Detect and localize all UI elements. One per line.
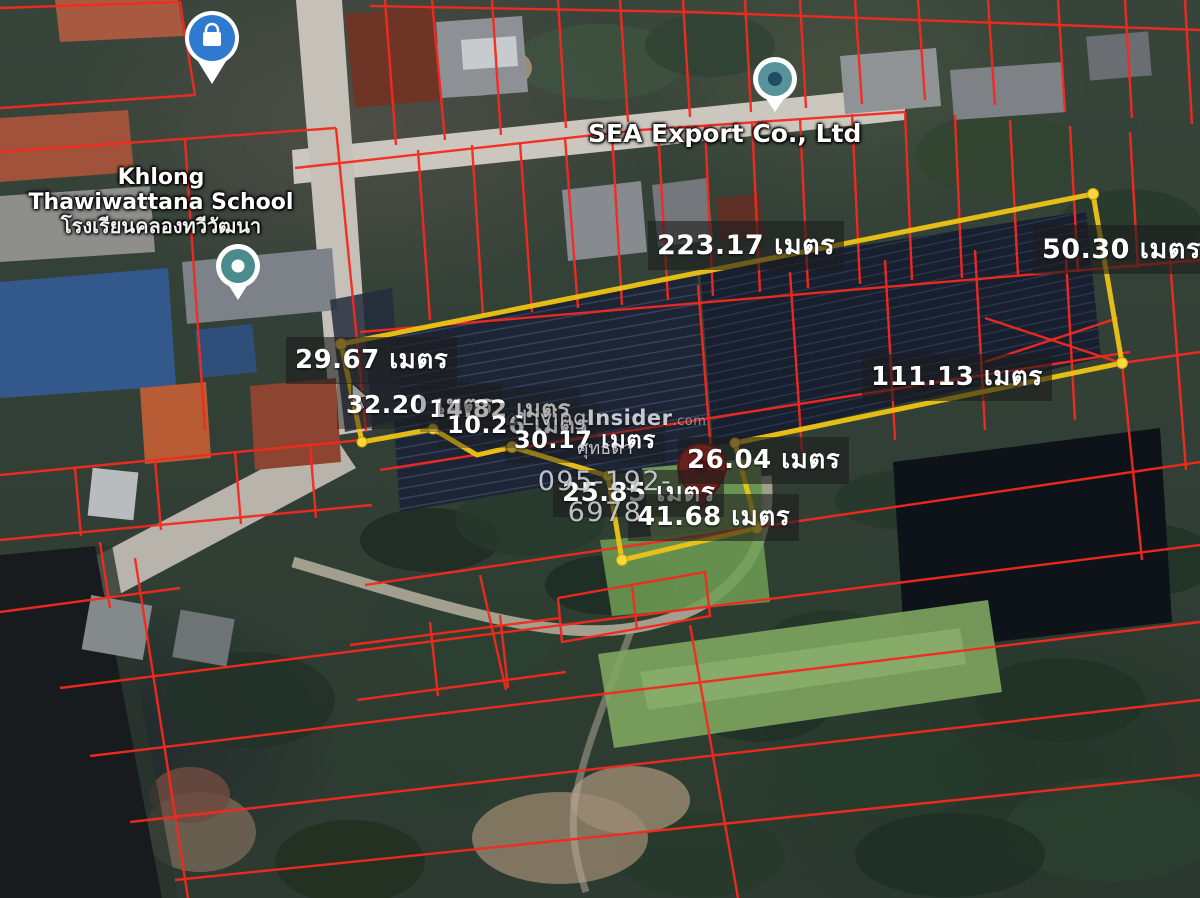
watermark-brand-prefix: Living xyxy=(521,406,586,430)
measurement-frontage: 29.67 เมตร xyxy=(286,337,457,384)
school-label-thai: โรงเรียนคลองทวีวัฒนา xyxy=(22,215,300,237)
measurement-right: 50.30 เมตร xyxy=(1033,225,1200,274)
school-label-line2: Thawiwattana School xyxy=(22,191,300,216)
watermark: ⌂LivingInsider.com ศุทธดา 095-192-6978 xyxy=(505,406,705,528)
measurement-top: 223.17 เมตร xyxy=(648,221,844,270)
house-logo-icon: ⌂ xyxy=(505,406,519,431)
satellite-map[interactable]: Khlong Thawiwattana School โรงเรียนคลองท… xyxy=(0,0,1200,898)
school-label[interactable]: Khlong Thawiwattana School โรงเรียนคลองท… xyxy=(22,166,300,238)
watermark-phone: 095-192-6978 xyxy=(505,466,705,528)
measurement-bottom: 111.13 เมตร xyxy=(862,354,1052,401)
watermark-brand-suffix: .com xyxy=(673,414,707,429)
watermark-agent-name: ศุทธดา xyxy=(505,433,705,462)
watermark-brand: ⌂LivingInsider.com xyxy=(505,406,705,431)
company-label[interactable]: SEA Export Co., Ltd xyxy=(588,120,861,148)
watermark-brand-bold: Insider xyxy=(587,406,673,430)
school-label-line1: Khlong xyxy=(22,166,300,191)
shop-pin-icon[interactable] xyxy=(185,11,239,84)
